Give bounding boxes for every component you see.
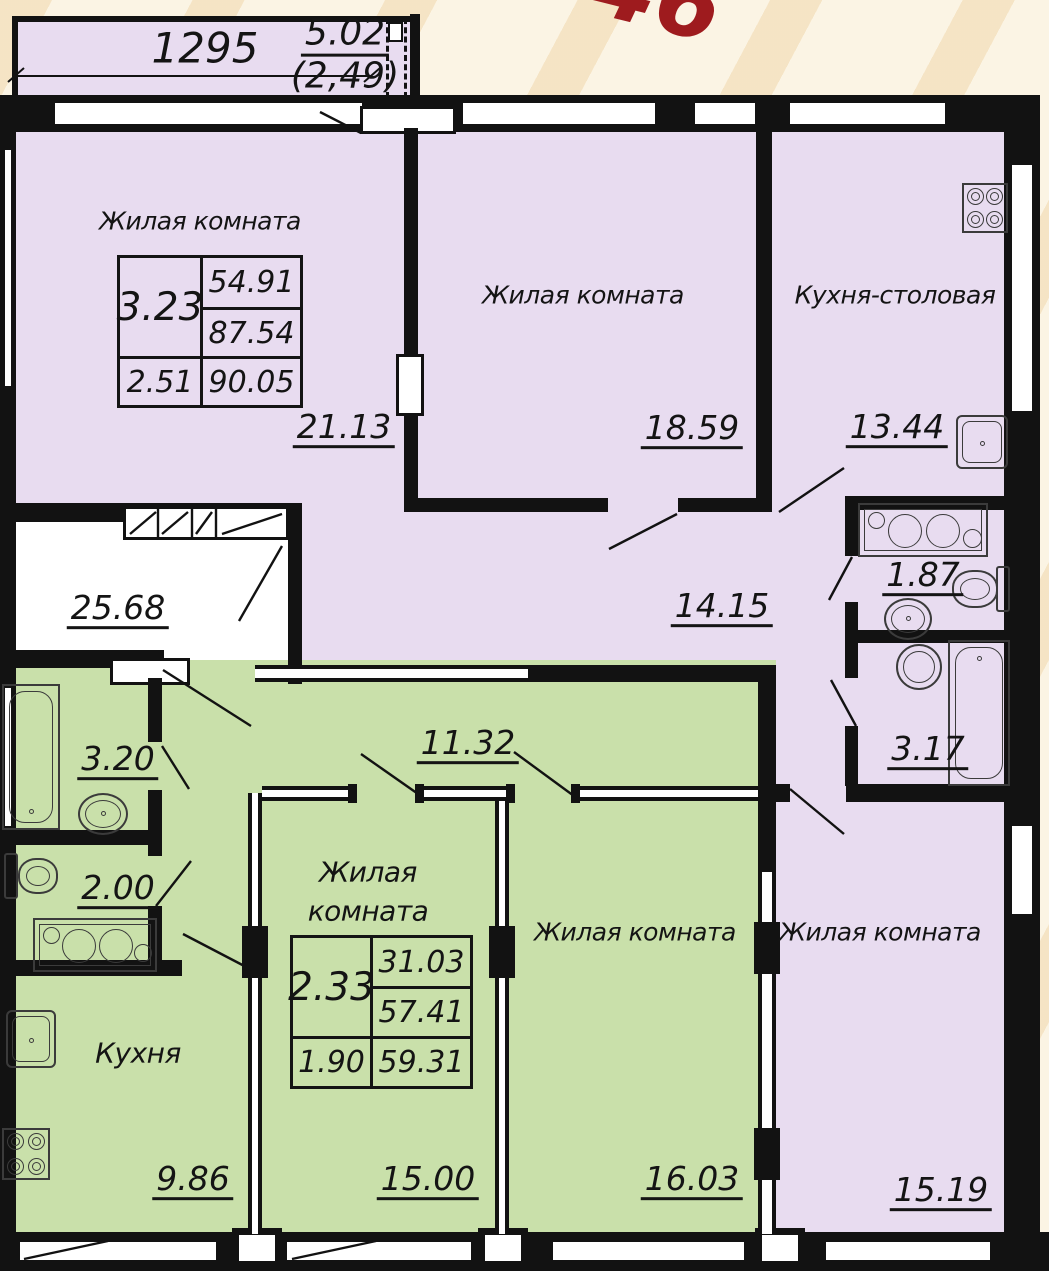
window <box>553 1240 744 1262</box>
wall <box>0 830 162 845</box>
window <box>1010 826 1034 914</box>
window <box>463 101 655 126</box>
kitchen-sink-icon <box>6 1010 56 1068</box>
wall <box>288 503 302 684</box>
wall <box>578 786 758 801</box>
toilet-tank-icon <box>996 566 1010 612</box>
washer-counter-icon <box>33 918 157 972</box>
floor-plan: 46 <box>0 0 1049 1271</box>
window <box>55 101 335 126</box>
wall-pier <box>232 1228 282 1268</box>
wall <box>148 790 162 856</box>
room-area-kitchen-b: 9.86 <box>152 1162 233 1200</box>
wall <box>255 665 531 682</box>
balcony-area: 5.02 <box>301 16 389 57</box>
balcony-box <box>388 22 403 42</box>
wall <box>404 128 418 512</box>
wall <box>845 602 858 678</box>
living-area-cell: 54.91 <box>200 258 300 307</box>
total-area-cell: 57.41 <box>370 986 470 1036</box>
balcony-wall <box>410 14 420 100</box>
room-area-hall-a: 14.15 <box>671 589 773 627</box>
room-area-living2-a: 18.59 <box>641 411 743 449</box>
room-label-living2-a: Жилая комната <box>482 281 684 310</box>
wall <box>678 498 758 512</box>
coef-cell: 3.23 <box>120 258 200 356</box>
coef2-cell: 1.90 <box>293 1036 370 1086</box>
window <box>1010 165 1034 411</box>
wall <box>845 726 858 786</box>
kitchen-sink-icon <box>956 415 1008 469</box>
room-area-living3-a: 15.19 <box>890 1173 992 1211</box>
room-label-living1-b-line1: Жилая <box>319 856 417 889</box>
coef-cell: 2.33 <box>293 938 370 1036</box>
wall <box>424 786 510 801</box>
room-label-kitchen-dining-a: Кухня-столовая <box>795 281 996 310</box>
room-label-living1-a: Жилая комната <box>99 207 301 236</box>
balcony-divider-dashed <box>404 18 407 98</box>
wall <box>776 784 790 802</box>
stove-icon <box>962 183 1008 233</box>
room-area-kitchen-dining-a: 13.44 <box>846 410 948 448</box>
wall-pier <box>755 1228 805 1268</box>
door-slab <box>396 354 424 416</box>
bathtub-icon <box>2 684 60 830</box>
total-balcony-cell: 90.05 <box>200 356 300 405</box>
balcony-wall <box>12 16 18 98</box>
wall <box>418 498 608 512</box>
room-label-living3-a: Жилая комната <box>779 918 981 947</box>
room-label-living1-b-line2: комната <box>308 895 429 928</box>
wall-pier <box>754 922 780 974</box>
corridor-area: 25.68 <box>67 591 169 629</box>
room-area-bathroom-b: 3.20 <box>77 742 158 780</box>
door-jamb <box>348 784 357 803</box>
living-area-cell: 31.03 <box>370 938 470 986</box>
toilet-icon <box>18 858 58 894</box>
stove-icon <box>2 1128 50 1180</box>
wall <box>495 793 509 1234</box>
wall-pier <box>242 926 268 978</box>
toilet-tank-icon <box>4 853 18 899</box>
window <box>790 101 945 126</box>
door-jamb <box>571 784 580 803</box>
dimension-label: 1295 <box>152 24 259 73</box>
wall-pier <box>478 1228 528 1268</box>
door-jamb <box>506 784 515 803</box>
bathroom-sink-icon <box>896 644 942 690</box>
window <box>20 1240 216 1262</box>
room-area-living1-a: 21.13 <box>293 410 395 448</box>
room-label-living2-b: Жилая комната <box>534 918 736 947</box>
window <box>826 1240 990 1262</box>
wall <box>148 678 162 742</box>
bathroom-sink-icon <box>78 793 128 835</box>
room-area-living2-b: 16.03 <box>641 1162 743 1200</box>
wall <box>262 786 352 801</box>
room-area-living1-b: 15.00 <box>377 1162 479 1200</box>
balcony-area-secondary: (2,49) <box>291 56 399 97</box>
window <box>695 101 755 126</box>
window <box>287 1240 471 1262</box>
apartment-b-summary-table: 2.33 31.03 57.41 1.90 59.31 <box>290 935 473 1089</box>
room-area-bathroom-a: 3.17 <box>887 732 968 770</box>
door-opening <box>318 101 362 126</box>
wall <box>248 793 262 1234</box>
wall <box>846 784 1008 802</box>
wall-pier <box>754 1128 780 1180</box>
door-jamb <box>415 784 424 803</box>
room-label-kitchen-b: Кухня <box>95 1037 181 1070</box>
vent-shaft-block <box>123 506 289 540</box>
washer-counter-icon <box>858 503 988 557</box>
wall <box>528 665 776 682</box>
bathroom-sink-icon <box>884 598 932 640</box>
wall <box>845 510 858 556</box>
room-area-wc-b: 2.00 <box>77 871 158 909</box>
wall-pier <box>489 926 515 978</box>
room-area-hall-b: 11.32 <box>417 726 519 764</box>
apartment-a-summary-table: 3.23 54.91 87.54 2.51 90.05 <box>117 255 303 408</box>
coef2-cell: 2.51 <box>120 356 200 405</box>
wall <box>756 128 772 512</box>
window <box>3 150 13 386</box>
wall <box>758 665 776 875</box>
room-area-wc-a: 1.87 <box>882 558 963 596</box>
total-area-cell: 87.54 <box>200 307 300 356</box>
total-balcony-cell: 59.31 <box>370 1036 470 1086</box>
